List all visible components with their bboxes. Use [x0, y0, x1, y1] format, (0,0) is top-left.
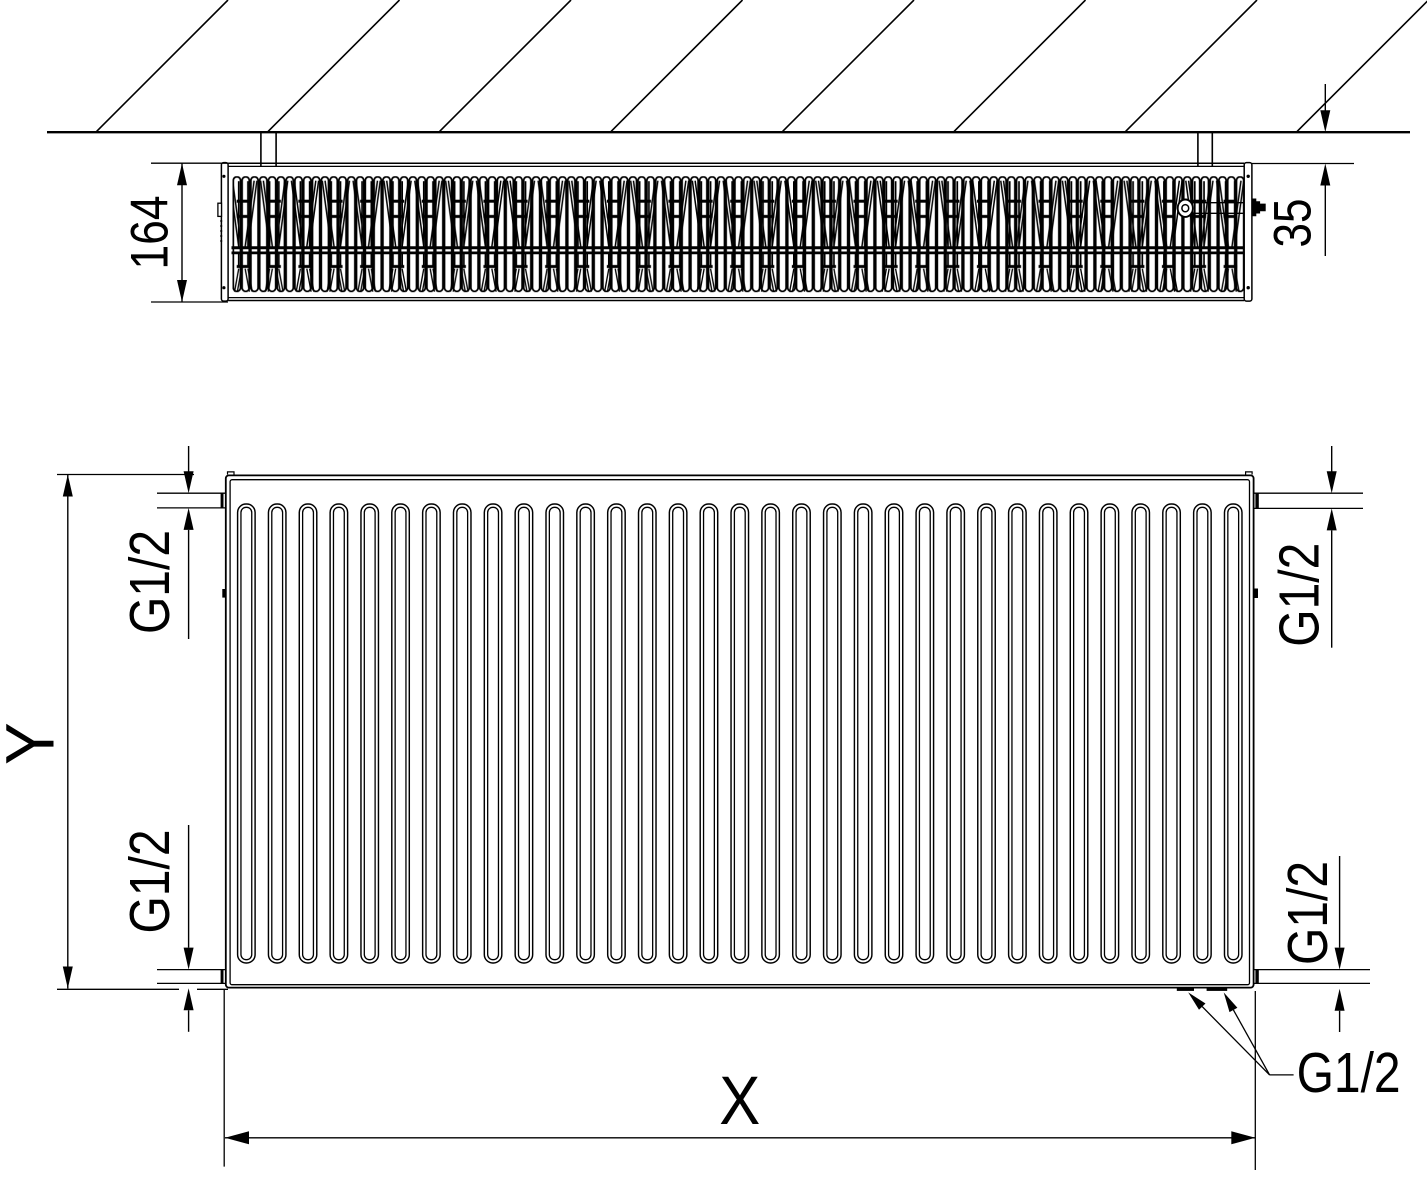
svg-text:G1/2: G1/2 [118, 830, 182, 934]
svg-text:Y: Y [0, 722, 69, 765]
svg-text:164: 164 [120, 196, 179, 270]
svg-text:G1/2: G1/2 [1276, 861, 1340, 965]
svg-text:G1/2: G1/2 [1297, 1041, 1401, 1105]
svg-text:G1/2: G1/2 [1268, 543, 1332, 647]
svg-text:35: 35 [1264, 199, 1323, 248]
svg-text:G1/2: G1/2 [118, 530, 182, 634]
svg-text:X: X [719, 1062, 760, 1139]
